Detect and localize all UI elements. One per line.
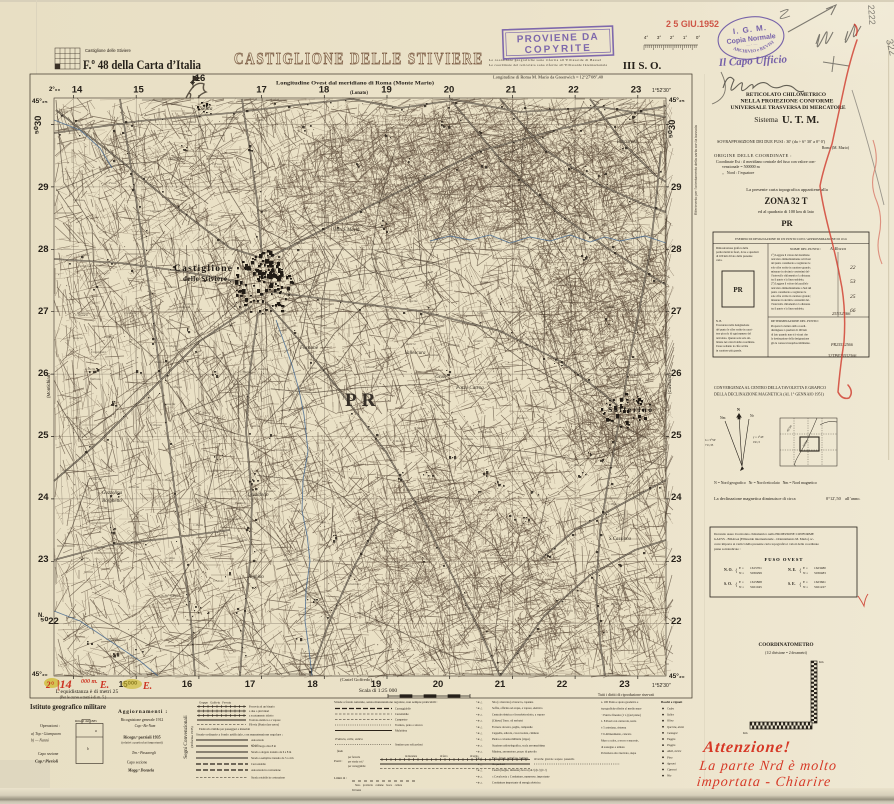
svg-text:Km: Km: [743, 731, 748, 735]
svg-text:Filovia (Funicolare aerea): Filovia (Funicolare aerea): [249, 723, 279, 727]
svg-text:20: 20: [444, 85, 455, 96]
svg-text:δ = 5°50′: δ = 5°50′: [705, 438, 716, 442]
svg-text:topografiche riferite al medio: topografiche riferite al medio mare: [601, 706, 642, 710]
svg-text:Dovendo usare il reticolato ch: Dovendo usare il reticolato chilometrico…: [714, 532, 814, 536]
svg-text:Autostrada in costruzione: Autostrada in costruzione: [251, 768, 281, 772]
svg-text:5030299: 5030299: [750, 571, 762, 575]
svg-text:Cascina: Cascina: [434, 403, 445, 407]
svg-text:b) — Nanni: b) — Nanni: [31, 739, 49, 743]
svg-text:Acquedotti: Acquedotti: [492, 762, 505, 766]
svg-text:Agrumi: Agrumi: [666, 761, 676, 765]
svg-text:Casella: Casella: [97, 506, 108, 510]
svg-text:Condutture importante di energ: Condutture importante di energia elettri…: [492, 781, 541, 785]
svg-text:(1ª cl.ᵐ): (1ª cl.ᵐ): [251, 744, 259, 747]
svg-text:Fontana: Fontana: [206, 469, 219, 473]
svg-text:FUSO OVEST: FUSO OVEST: [765, 557, 804, 562]
svg-text:Fontana: Fontana: [447, 343, 460, 347]
svg-text:III S. O.: III S. O.: [623, 60, 662, 72]
svg-text:E.: E.: [142, 681, 152, 692]
svg-text:26: 26: [671, 368, 682, 379]
svg-text:17: 17: [245, 679, 256, 690]
svg-text:Casella: Casella: [136, 552, 147, 556]
svg-text:Ponti :: Ponti :: [334, 759, 343, 763]
svg-text:Barcarolo: Barcarolo: [617, 140, 638, 145]
svg-text:C.Alta: C.Alta: [308, 366, 317, 370]
svg-text:Trascurare nella designazione: Trascurare nella designazione: [716, 324, 750, 327]
svg-text:(Chiesa) Torre, oil serbatoi: (Chiesa) Torre, oil serbatoi: [492, 719, 523, 723]
svg-text:C.Alta: C.Alta: [561, 282, 570, 286]
svg-text:per carreggiabile: per carreggiabile: [348, 765, 366, 768]
svg-text:venzionale = 500000 m: venzionale = 500000 m: [722, 164, 761, 169]
svg-text:25: 25: [38, 430, 49, 441]
svg-text:C.Bella: C.Bella: [264, 281, 275, 285]
svg-text:a. 100 Punta e quota geodetic: a. 100 Punta e quota geodetica e: [601, 700, 639, 704]
svg-text:Carreggiabile: Carreggiabile: [395, 707, 411, 711]
svg-text:a scartamento ridotto: a scartamento ridotto: [249, 714, 274, 718]
svg-text:Pezzini: Pezzini: [610, 602, 621, 606]
svg-text:22: 22: [568, 85, 579, 96]
svg-text:53: 53: [850, 279, 856, 285]
svg-text:Km: Km: [819, 660, 824, 664]
svg-text:17: 17: [256, 85, 267, 96]
svg-text:C.Nuova: C.Nuova: [378, 128, 390, 132]
svg-text:Valbusa: Valbusa: [473, 605, 484, 609]
svg-text:Elettrovia visibile per passeg: Elettrovia visibile per passeggeri e mat…: [199, 727, 250, 731]
svg-text:5021227: 5021227: [814, 585, 826, 589]
svg-text:15: 15: [133, 85, 144, 96]
svg-text:NOME DEL PUNTO :: NOME DEL PUNTO :: [790, 247, 821, 251]
svg-text:1615701: 1615701: [750, 566, 762, 570]
svg-text:C.Bianca: C.Bianca: [611, 382, 623, 386]
svg-text:{: {: [799, 583, 801, 588]
svg-text:Aggiornamenti :: Aggiornamenti :: [118, 709, 168, 715]
svg-text:Gherla: Gherla: [79, 556, 89, 560]
svg-text:Ricogn.ᵉ parziali 1935: Ricogn.ᵉ parziali 1935: [123, 735, 160, 740]
svg-text:66: 66: [850, 308, 856, 314]
svg-text:N.: N.: [38, 613, 44, 619]
svg-text:C.Alta: C.Alta: [510, 269, 519, 273]
svg-text:2222: 2222: [866, 4, 877, 25]
svg-text:14: 14: [72, 85, 83, 96]
svg-text:N: N: [737, 407, 740, 412]
svg-text:Capo sezione: Capo sezione: [38, 752, 59, 756]
svg-text:23: 23: [619, 679, 630, 690]
svg-text:per strada ord.ª: per strada ord.ª: [348, 761, 364, 764]
svg-text:29: 29: [38, 182, 49, 193]
svg-text:all’anno.: all’anno.: [845, 496, 860, 501]
svg-text:• ⊕ △: • ⊕ △: [476, 775, 483, 778]
svg-text:C.Nuova: C.Nuova: [126, 656, 138, 660]
svg-text:Boschi e vigneti: Boschi e vigneti: [661, 700, 682, 704]
svg-text:C.Bianca: C.Bianca: [229, 394, 242, 398]
svg-text:Colombare: Colombare: [346, 582, 362, 586]
svg-text:Valbusa: Valbusa: [73, 198, 84, 202]
svg-text:Tratturo, prato o stracco: Tratturo, prato o stracco: [395, 723, 423, 727]
svg-text:Pezzini: Pezzini: [312, 558, 323, 562]
svg-text:Olivo: Olivo: [667, 719, 674, 723]
svg-text:Istituto geografico militare: Istituto geografico militare: [30, 702, 107, 711]
svg-text:2°: 2°: [670, 35, 675, 40]
svg-text:Castagni: Castagni: [667, 731, 678, 735]
svg-text:U. T. M.: U. T. M.: [782, 115, 819, 126]
svg-text:Montebello: Montebello: [169, 157, 186, 161]
svg-text:C.Monte: C.Monte: [624, 290, 636, 294]
svg-text:Proporre la lettura della coor: Proporre la lettura della coordi-: [771, 325, 806, 328]
svg-text:C.Nuova: C.Nuova: [454, 144, 466, 148]
svg-text:C.Verde: C.Verde: [256, 548, 267, 552]
svg-text:Valbusa: Valbusa: [150, 209, 161, 213]
svg-text:25: 25: [671, 430, 682, 441]
svg-text:Cascina: Cascina: [562, 231, 573, 235]
svg-text:Carrettabile: Carrettabile: [395, 712, 409, 716]
svg-text:C.Alta: C.Alta: [627, 373, 636, 377]
svg-text:C.Monte: C.Monte: [449, 538, 461, 542]
svg-text:28: 28: [671, 244, 682, 255]
svg-text:a: a: [95, 729, 97, 733]
svg-text:Fontane: Fontane: [299, 345, 319, 351]
svg-text:• ⊕ △: • ⊕ △: [476, 757, 483, 760]
svg-text:C.Bosco: C.Bosco: [608, 502, 620, 506]
svg-text:Salice: Salice: [667, 713, 675, 717]
svg-text:COORDINATOMETRO: COORDINATOMETRO: [759, 643, 814, 648]
svg-text:« Cavalcavia » Condutture, nu: « Cavalcavia » Condutture, numerose, imp…: [492, 774, 550, 778]
svg-text:• ⊕ △: • ⊕ △: [476, 769, 483, 772]
svg-text:• ⊕ △: • ⊕ △: [476, 720, 483, 723]
svg-text:⁖ Punti e finestre (1 v.) (su: ⁖ Punti e finestre (1 v.) (sul piano): [601, 713, 641, 717]
svg-text:Polveriera etto riservato, sie: Polveriera etto riservato, siepe: [601, 751, 637, 755]
svg-text:Gherla: Gherla: [590, 565, 600, 569]
svg-text:Esenta: Esenta: [197, 106, 213, 112]
svg-text:Pezzini: Pezzini: [499, 150, 509, 154]
svg-text:Le coordinate del reticolato s: Le coordinate del reticolato sono riferi…: [489, 63, 608, 67]
svg-text:22: 22: [557, 679, 568, 690]
svg-text:S.Pietro: S.Pietro: [170, 594, 181, 598]
svg-text:E.: E.: [99, 680, 109, 691]
svg-text:a) Top.ᵒ Giampaoro: a) Top.ᵒ Giampaoro: [31, 732, 61, 736]
svg-text:Levaldello: Levaldello: [246, 493, 269, 498]
svg-text:⁵⁰30: ⁵⁰30: [33, 116, 44, 135]
svg-text:N =: N =: [739, 585, 744, 589]
svg-text:Quercia, abete: Quercia, abete: [667, 725, 685, 729]
svg-text:Colombare: Colombare: [91, 350, 107, 354]
svg-text:C.Rossi: C.Rossi: [393, 439, 404, 443]
svg-text:Operazioni :: Operazioni :: [40, 723, 60, 728]
svg-text:Gherla: Gherla: [309, 633, 319, 637]
svg-text:3°: 3°: [657, 35, 662, 40]
svg-text:5021045: 5021045: [750, 585, 762, 589]
svg-text:Cascina: Cascina: [291, 509, 302, 513]
svg-text:C.Fava: C.Fava: [593, 345, 603, 349]
svg-text:C.Nuova: C.Nuova: [170, 385, 182, 389]
svg-text:(relativi a particolari import: (relativi a particolari importanti): [121, 741, 162, 745]
svg-text:Ricognizione generale 1912: Ricognizione generale 1912: [121, 718, 164, 722]
svg-text:C.Monte: C.Monte: [351, 594, 363, 598]
svg-text:COPYRITE: COPYRITE: [525, 43, 592, 56]
svg-text:Magg.ᵉ Donzela: Magg.ᵉ Donzela: [127, 768, 154, 773]
svg-text:45°₂₀: 45°₂₀: [669, 672, 685, 680]
svg-text:Cascina: Cascina: [546, 130, 557, 134]
svg-text:Muro a calce, a secco e maceri: Muro a calce, a secco e macerie,: [601, 738, 639, 742]
svg-text:C.Rossi: C.Rossi: [141, 175, 152, 179]
svg-text:C.Bella: C.Bella: [357, 186, 368, 190]
svg-text:Poggio: Poggio: [666, 743, 676, 747]
svg-text:Grole: Grole: [435, 375, 447, 380]
svg-text:16: 16: [182, 679, 193, 690]
svg-text:Fontana: Fontana: [234, 501, 247, 505]
svg-text:C.Bella: C.Bella: [85, 367, 96, 371]
svg-text:PR25532566: PR25532566: [830, 342, 854, 347]
svg-text:C.Nuova: C.Nuova: [461, 437, 473, 441]
svg-text:C.Bianca: C.Bianca: [571, 463, 584, 467]
svg-text:Scala di 1:25 000: Scala di 1:25 000: [359, 688, 398, 694]
svg-text:± 5 artesiana, cisterna: ± 5 artesiana, cisterna: [601, 726, 627, 730]
svg-text:E =: E =: [803, 580, 808, 584]
svg-text:RETICOLATO CHILOMETRICO: RETICOLATO CHILOMETRICO: [746, 92, 826, 98]
svg-text:28: 28: [38, 244, 49, 255]
svg-text:C.Verde: C.Verde: [414, 426, 425, 430]
svg-text:l’intervallo chilometrico la d: l’intervallo chilometrico la distanza: [771, 303, 811, 306]
svg-text:Montebello: Montebello: [621, 308, 638, 312]
svg-text:Tutti i diritti di riproduzion: Tutti i diritti di riproduzione riservat…: [598, 693, 654, 697]
svg-text:Pezzini: Pezzini: [300, 386, 311, 390]
svg-text:γ = 1°45′: γ = 1°45′: [753, 435, 764, 439]
svg-text:(Riforma 1935): (Riforma 1935): [190, 726, 194, 747]
svg-text:45°₂₅: 45°₂₅: [32, 97, 48, 105]
svg-text:C.Fava: C.Fava: [630, 229, 640, 233]
svg-text:Pezzini: Pezzini: [103, 335, 114, 339]
svg-text:1°: 1°: [683, 35, 688, 40]
svg-text:Montebello: Montebello: [153, 360, 170, 364]
svg-text:già le conosca inequivocabilme: già le conosca inequivocabilmente.: [771, 342, 811, 345]
svg-text:25532566: 25532566: [832, 311, 851, 316]
svg-text:UNIVERSALE TRASVERSA DI MERCAT: UNIVERSALE TRASVERSA DI MERCATORE: [731, 105, 846, 111]
svg-text:Castiglione: Castiglione: [174, 264, 232, 274]
svg-text:Montebello: Montebello: [312, 174, 329, 178]
svg-text:C.Monte: C.Monte: [165, 285, 177, 289]
svg-text:C.Alta: C.Alta: [629, 328, 638, 332]
svg-text:C.Fava: C.Fava: [585, 498, 595, 502]
svg-text:C.Alta: C.Alta: [444, 178, 453, 182]
svg-text:Riferimento per l’orientamento: Riferimento per l’orientamento della car…: [694, 125, 698, 215]
svg-text:S.Pietro: S.Pietro: [206, 223, 217, 227]
svg-text:Casella: Casella: [560, 183, 571, 187]
svg-text:Casella: Casella: [407, 299, 418, 303]
svg-text:di barche girevole sospeso: di barche girevole sospeso passerella: [534, 758, 575, 761]
svg-text:Pino: Pino: [666, 755, 673, 759]
svg-text:PR: PR: [781, 218, 793, 228]
svg-text:carta.: carta.: [716, 258, 723, 262]
svg-text:Colombare: Colombare: [379, 192, 395, 196]
svg-text:Ronchi: Ronchi: [606, 314, 617, 318]
svg-text:Ferrovia ad un binario: Ferrovia ad un binario: [249, 705, 275, 709]
svg-text:27: 27: [38, 306, 49, 317]
svg-text:(Per le curve a tratti è di m.: (Per le curve a tratti è di m. 5.): [60, 696, 107, 700]
svg-text:S. E.: S. E.: [788, 582, 796, 586]
svg-text:del punto le cifre scritte in: del punto le cifre scritte in carat-: [716, 328, 753, 331]
svg-text:C.Monte: C.Monte: [137, 440, 149, 444]
svg-text:l’intervallo chilometrico la d: l’intervallo chilometrico la distanza: [771, 275, 811, 278]
svg-text:PR: PR: [345, 390, 380, 411]
svg-text:Colombare: Colombare: [225, 517, 241, 521]
svg-text:NELLA PROIEZIONE CONFORME: NELLA PROIEZIONE CONFORME: [741, 99, 834, 105]
svg-text:importata - Chiarire: importata - Chiarire: [696, 774, 832, 790]
svg-text:distinguere i quadrati di 100: distinguere i quadrati di 100 km: [771, 329, 808, 332]
svg-text:La declinazione magnetica dimi: La declinazione magnetica diminuisce di …: [714, 496, 796, 501]
svg-text:{: {: [735, 583, 737, 588]
svg-text:C.Bianca: C.Bianca: [75, 313, 88, 317]
svg-text:{: {: [799, 569, 801, 574]
svg-text:C.Monte: C.Monte: [401, 564, 413, 568]
svg-text:{: {: [735, 569, 737, 574]
svg-text:Ten.ᵉ Passaregli: Ten.ᵉ Passaregli: [132, 751, 156, 755]
svg-text:Longitudine Ovest dal meridian: Longitudine Ovest dal meridiano di Roma …: [276, 80, 434, 87]
svg-text:Cap.ᵒ Pierioli: Cap.ᵒ Pierioli: [35, 759, 59, 764]
svg-text:Sentiero per soli pedoni: Sentiero per soli pedoni: [395, 743, 423, 747]
svg-text:Gherla: Gherla: [364, 202, 374, 206]
svg-text:Valbusa: Valbusa: [435, 148, 446, 152]
svg-text:del punto considerato e regist: del punto considerato e registrare le: [771, 262, 811, 265]
svg-text:C.Fava: C.Fava: [482, 430, 492, 434]
svg-text:N. E.: N. E.: [788, 568, 796, 572]
svg-text:20: 20: [433, 679, 444, 690]
svg-text:Casella: Casella: [384, 549, 395, 553]
svg-text:C.Bosco: C.Bosco: [599, 223, 611, 227]
svg-text:21: 21: [495, 679, 506, 690]
svg-text:Capo sezione: Capo sezione: [127, 761, 148, 765]
svg-text:18: 18: [307, 679, 318, 690]
svg-text:Fontana: Fontana: [621, 338, 634, 342]
svg-text:Casella: Casella: [523, 112, 534, 116]
svg-text:(1/2 divisione = 2 decametri): (1/2 divisione = 2 decametri): [765, 651, 808, 655]
svg-text:45°₂₀: 45°₂₀: [32, 670, 48, 678]
svg-text:C.Bella: C.Bella: [158, 594, 169, 598]
svg-text:Gozzolina: Gozzolina: [102, 491, 123, 496]
svg-text:C.Monte: C.Monte: [363, 365, 375, 369]
svg-text:punto considerato e registrare: punto considerato e registrare le: [771, 291, 807, 294]
svg-text:Gherla: Gherla: [607, 305, 616, 309]
svg-text:45°₂₅: 45°₂₅: [669, 96, 685, 104]
svg-text:in carattere più grande.: in carattere più grande.: [716, 349, 742, 352]
svg-text:Stazione radiotelegrafica, sca: Stazione radiotelegrafica, scala aeromar…: [492, 743, 546, 747]
svg-text:E =: E =: [739, 566, 744, 570]
svg-text:C.Alta: C.Alta: [176, 309, 185, 313]
svg-text:reticolato immediatamente a Su: reticolato immediatamente a Sud del: [771, 287, 812, 290]
svg-text:27: 27: [671, 306, 682, 317]
svg-text:C.Alta: C.Alta: [484, 380, 493, 384]
svg-text:C.Bosco: C.Bosco: [321, 199, 333, 203]
svg-text:di sostegno e armato: di sostegno e armato: [601, 745, 625, 749]
svg-text:Valbusa: Valbusa: [443, 124, 453, 128]
svg-text:• ⊕ △: • ⊕ △: [476, 782, 483, 785]
svg-text:25: 25: [850, 294, 856, 300]
svg-text:C.Bianca: C.Bianca: [403, 488, 416, 492]
svg-text:• ⊕ △: • ⊕ △: [476, 738, 483, 741]
svg-text:Cascina: Cascina: [427, 489, 438, 493]
svg-text:per ferrovia: per ferrovia: [348, 756, 361, 759]
svg-text:la destinazione della designaz: la destinazione della designazione: [771, 338, 810, 341]
svg-text:• ⊕ △: • ⊕ △: [476, 751, 483, 754]
svg-text:29: 29: [671, 182, 682, 193]
svg-text:GAUSS - BOAGA (Ellissoide inte: GAUSS - BOAGA (Ellissoide internazionale…: [714, 537, 814, 541]
svg-text:N. O.: N. O.: [724, 568, 733, 572]
svg-text:24: 24: [38, 492, 49, 503]
svg-text:Villa S.Maria: Villa S.Maria: [333, 228, 360, 233]
svg-text:Casella: Casella: [237, 538, 248, 542]
svg-text:misurare in decimi e centesimi: misurare in decimi e centesimi del-: [771, 299, 810, 302]
svg-text:reticolato immediatamente ad O: reticolato immediatamente ad Ovest: [771, 258, 811, 261]
svg-text:Ronchi: Ronchi: [72, 336, 83, 340]
svg-text:piane sottoindicate :: piane sottoindicate :: [714, 547, 741, 551]
svg-text:C.Verde: C.Verde: [455, 633, 466, 637]
svg-text:Casella: Casella: [129, 485, 140, 489]
svg-text:Miniera, aeromotore, pozzo di: Miniera, aeromotore, pozzo di petrolio: [492, 750, 537, 754]
svg-text:C.Bella: C.Bella: [193, 523, 204, 527]
svg-text:1. 8 Pozzi con carrucola, nor: 1. 8 Pozzi con carrucola, noria: [601, 719, 637, 723]
svg-text:Pezzini: Pezzini: [594, 123, 605, 127]
svg-text:Cappella, edicola, croce isola: Cappella, edicola, croce isolata, cimite…: [492, 731, 540, 735]
svg-text:S.Pietro: S.Pietro: [110, 638, 121, 642]
svg-text:tra il punto e la linea suddet: tra il punto e la linea suddetta.: [771, 279, 805, 282]
svg-text:2°: 2°: [45, 680, 55, 690]
svg-text:22: 22: [850, 265, 856, 271]
svg-text:Casella: Casella: [250, 424, 261, 428]
svg-text:23: 23: [38, 554, 49, 565]
svg-text:a due o più binari: a due o più binari: [249, 709, 269, 713]
svg-text:• ⊕ △: • ⊕ △: [476, 726, 483, 729]
svg-text:C.Rossi: C.Rossi: [294, 241, 305, 245]
svg-text:DELLA DECLINAZIONE MAGNETICA (: DELLA DECLINAZIONE MAGNETICA (AL 1° GENN…: [714, 392, 825, 397]
svg-text:C.Monte: C.Monte: [348, 138, 360, 142]
svg-text:(Montichiari): (Montichiari): [46, 373, 51, 398]
svg-text:Carrozzabile: Carrozzabile: [251, 762, 266, 766]
svg-text:di lato quando non si è sicuri: di lato quando non si è sicuri che: [771, 333, 809, 336]
svg-text:• ⊕ △: • ⊕ △: [476, 707, 483, 710]
svg-text:C.Fava: C.Fava: [106, 181, 116, 185]
svg-text:Pezzini: Pezzini: [479, 280, 490, 284]
svg-text:Colombare: Colombare: [78, 264, 94, 268]
svg-text:F.º 48 della Carta d’Italia: F.º 48 della Carta d’Italia: [83, 57, 201, 72]
svg-text:Faggio: Faggio: [666, 737, 676, 741]
svg-text:1°52′30″: 1°52′30″: [652, 88, 671, 94]
svg-text:Faro, fanale, semaforo, lumier: Faro, fanale, semaforo, lumiera: [492, 756, 529, 760]
svg-text:C.Alta: C.Alta: [255, 118, 264, 122]
svg-text:N =: N =: [803, 585, 808, 589]
svg-text:Cascina: Cascina: [91, 477, 102, 481]
svg-text:C.Alta: C.Alta: [559, 153, 568, 157]
svg-text:(Castel Goffredo): (Castel Goffredo): [340, 677, 372, 682]
svg-text:b: b: [87, 747, 89, 751]
svg-text:Solferino: Solferino: [608, 405, 652, 414]
svg-text:Colombare: Colombare: [425, 353, 441, 357]
svg-text:C.Monte: C.Monte: [166, 344, 178, 348]
svg-text:delle Stiviere: delle Stiviere: [183, 275, 227, 283]
svg-text:Roma (M. Mario): Roma (M. Mario): [822, 146, 850, 150]
svg-text:A. Rocca: A. Rocca: [829, 246, 847, 251]
svg-text:in muratura: in muratura: [405, 755, 418, 758]
svg-text:reticolato. Queste sole solo u: reticolato. Queste sole solo uti-: [716, 337, 751, 340]
svg-text:C.Lunga: C.Lunga: [388, 560, 400, 564]
svg-text:Ronchi: Ronchi: [405, 342, 416, 346]
svg-text:5030483: 5030483: [814, 571, 826, 575]
svg-text:Strada a semplice transito da: Strada a semplice transito da 5 a 4 m: [251, 756, 294, 760]
svg-text:sole cifre scritte in caratter: sole cifre scritte in carattere grande ;: [771, 295, 811, 298]
svg-text:corre imporre ai vertici della: corre imporre ai vertici della presente …: [714, 542, 819, 546]
svg-text:Ronchi: Ronchi: [332, 530, 343, 534]
svg-text:Valbusa: Valbusa: [388, 529, 398, 533]
svg-text:Attenzione!: Attenzione!: [702, 739, 792, 756]
svg-text:Montebello: Montebello: [282, 558, 299, 562]
svg-text:CASTIGLIONE DELLE STIVIERE: CASTIGLIONE DELLE STIVIERE: [234, 49, 484, 68]
